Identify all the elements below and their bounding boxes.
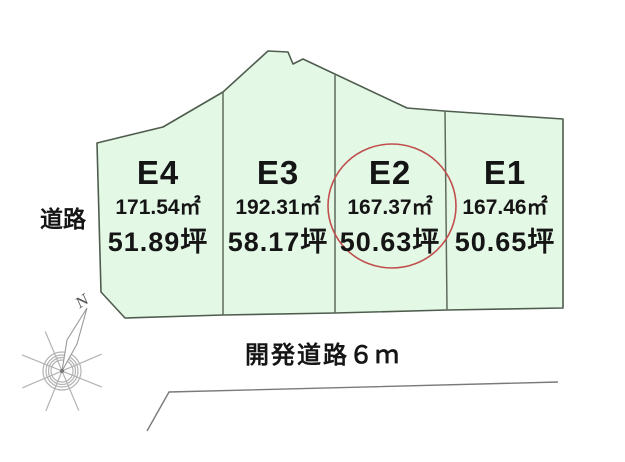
plot-e2-id: E2 (369, 154, 411, 191)
compass-center-dot (60, 369, 64, 373)
plot-e3-area-tsubo: 58.17坪 (228, 227, 329, 257)
plot-e3-area-m2: 192.31㎡ (235, 195, 320, 219)
plot-e1-area-tsubo: 50.65坪 (455, 227, 556, 257)
bottom-road-line (147, 382, 558, 431)
north-label: N (72, 291, 93, 312)
plot-e2-area-m2: 167.37㎡ (347, 195, 432, 219)
plot-e4-area-tsubo: 51.89坪 (108, 227, 209, 257)
left-road-label: 道路 (40, 206, 87, 232)
plot-e3-id: E3 (257, 154, 299, 191)
bottom-road-label: 開発道路６ｍ (245, 341, 401, 369)
diagram-canvas: E4 171.54㎡ 51.89坪 E3 192.31㎡ 58.17坪 E2 1… (0, 0, 625, 462)
land-plot-diagram: E4 171.54㎡ 51.89坪 E3 192.31㎡ 58.17坪 E2 1… (0, 0, 625, 462)
plot-e4-area-m2: 171.54㎡ (115, 195, 200, 219)
plot-e1-area-m2: 167.46㎡ (462, 195, 547, 219)
plot-e2-area-tsubo: 50.63坪 (340, 227, 441, 257)
plot-e1-id: E1 (484, 154, 526, 191)
compass-rose-icon: N (6, 291, 119, 427)
plot-e4-id: E4 (137, 154, 179, 191)
